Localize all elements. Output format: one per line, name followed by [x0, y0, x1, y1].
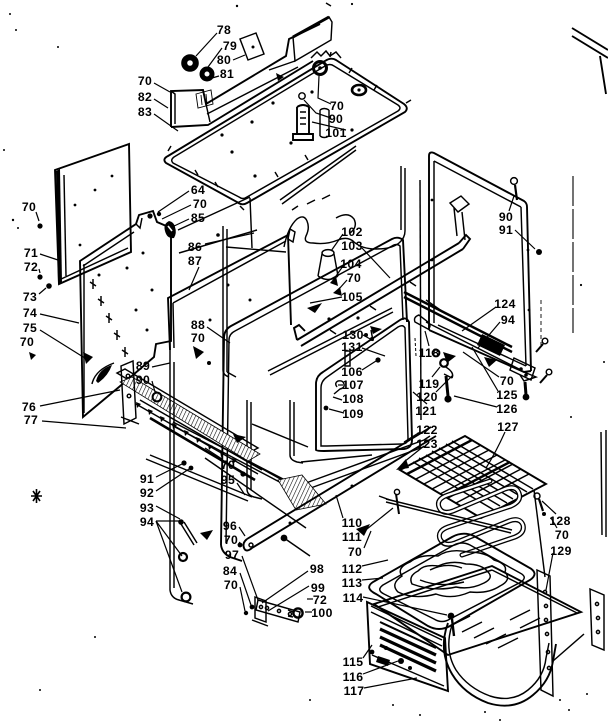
svg-text:89: 89 — [136, 359, 150, 373]
svg-text:95: 95 — [221, 473, 235, 487]
svg-text:97: 97 — [225, 548, 239, 562]
svg-text:70: 70 — [224, 533, 238, 547]
svg-text:94: 94 — [140, 515, 154, 529]
svg-text:71: 71 — [24, 246, 38, 260]
svg-text:103: 103 — [341, 239, 363, 253]
svg-text:101: 101 — [325, 126, 347, 140]
svg-text:104: 104 — [340, 257, 362, 271]
svg-text:96: 96 — [223, 519, 237, 533]
svg-text:128: 128 — [549, 514, 571, 528]
svg-text:102: 102 — [341, 225, 363, 239]
svg-text:70: 70 — [330, 99, 344, 113]
svg-text:90: 90 — [136, 373, 150, 387]
svg-text:106: 106 — [341, 365, 363, 379]
svg-text:110: 110 — [342, 516, 363, 530]
svg-text:107: 107 — [342, 378, 364, 392]
svg-text:85: 85 — [191, 211, 205, 225]
svg-text:90: 90 — [499, 210, 513, 224]
svg-text:129: 129 — [550, 544, 572, 558]
svg-text:120: 120 — [416, 390, 438, 404]
svg-text:105: 105 — [341, 290, 363, 304]
svg-text:113: 113 — [342, 576, 363, 590]
svg-text:91: 91 — [140, 472, 154, 486]
svg-text:82: 82 — [138, 90, 152, 104]
svg-text:115: 115 — [343, 655, 364, 669]
svg-text:124: 124 — [494, 297, 516, 311]
svg-text:90: 90 — [329, 112, 343, 126]
svg-text:70: 70 — [193, 197, 207, 211]
svg-text:118: 118 — [419, 346, 440, 360]
svg-text:70: 70 — [20, 335, 34, 349]
svg-text:100: 100 — [311, 606, 333, 620]
svg-text:93: 93 — [140, 501, 154, 515]
svg-text:70: 70 — [555, 528, 569, 542]
svg-text:86: 86 — [188, 240, 202, 254]
svg-text:111: 111 — [342, 530, 362, 544]
svg-text:87: 87 — [188, 254, 202, 268]
svg-text:84: 84 — [223, 564, 237, 578]
svg-text:117: 117 — [344, 684, 365, 698]
svg-text:70: 70 — [22, 200, 36, 214]
svg-text:98: 98 — [310, 562, 324, 576]
svg-text:123: 123 — [416, 437, 438, 451]
svg-text:92: 92 — [140, 486, 154, 500]
svg-text:119: 119 — [419, 377, 440, 391]
svg-text:114: 114 — [343, 591, 364, 605]
svg-text:79: 79 — [223, 39, 237, 53]
svg-text:78: 78 — [217, 23, 231, 37]
svg-text:131: 131 — [341, 340, 363, 354]
svg-text:75: 75 — [23, 321, 37, 335]
svg-text:108: 108 — [342, 392, 364, 406]
svg-text:80: 80 — [217, 53, 231, 67]
svg-text:70: 70 — [500, 374, 514, 388]
svg-text:77: 77 — [24, 413, 38, 427]
svg-text:72: 72 — [313, 593, 327, 607]
svg-text:88: 88 — [191, 318, 205, 332]
svg-text:112: 112 — [342, 562, 363, 576]
svg-text:73: 73 — [23, 290, 37, 304]
svg-text:127: 127 — [497, 420, 519, 434]
svg-text:94: 94 — [501, 313, 515, 327]
svg-text:83: 83 — [138, 105, 152, 119]
svg-text:70: 70 — [221, 458, 235, 472]
svg-text:64: 64 — [191, 183, 205, 197]
svg-text:74: 74 — [23, 306, 37, 320]
svg-text:121: 121 — [415, 404, 437, 418]
svg-text:70: 70 — [138, 74, 152, 88]
svg-text:70: 70 — [347, 271, 361, 285]
svg-text:116: 116 — [343, 670, 364, 684]
svg-text:70: 70 — [348, 545, 362, 559]
svg-text:70: 70 — [191, 331, 205, 345]
svg-text:126: 126 — [496, 402, 518, 416]
svg-text:122: 122 — [416, 423, 438, 437]
svg-text:81: 81 — [220, 67, 234, 81]
svg-text:70: 70 — [224, 578, 238, 592]
svg-text:76: 76 — [22, 400, 36, 414]
svg-text:125: 125 — [496, 388, 518, 402]
svg-text:72: 72 — [24, 260, 38, 274]
svg-text:109: 109 — [342, 407, 364, 421]
svg-text:91: 91 — [499, 223, 513, 237]
